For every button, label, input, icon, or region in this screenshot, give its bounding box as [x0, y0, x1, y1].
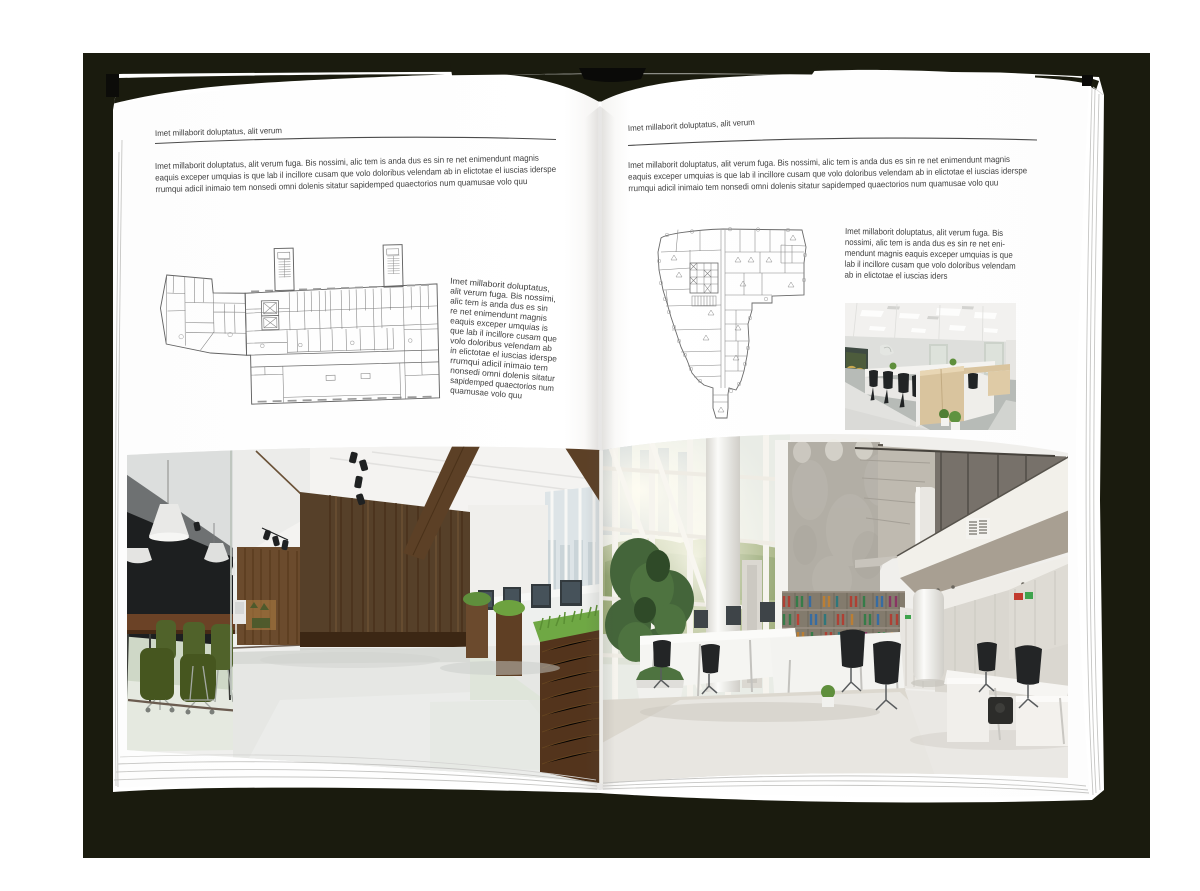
svg-text:ab in elictotae el iuscias ide: ab in elictotae el iuscias iders [844, 270, 947, 281]
svg-text:nossimi, alic tem is anda dus: nossimi, alic tem is anda dus es sin re … [845, 237, 1005, 249]
svg-text:Imet millaborit doluptatus, al: Imet millaborit doluptatus, alit verum f… [845, 226, 1003, 238]
